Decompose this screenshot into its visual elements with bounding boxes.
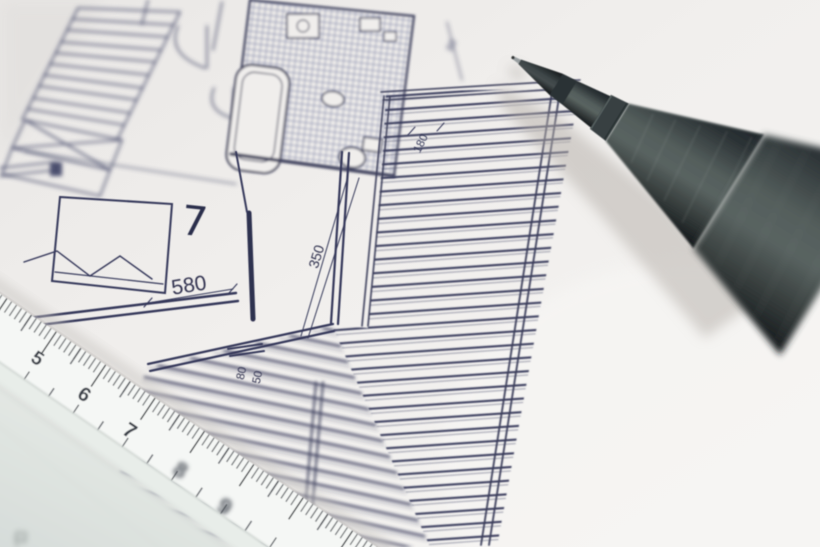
fixture-shape [384,32,396,41]
fixture-shape [360,18,380,31]
washing-machine-shape [287,14,319,38]
room-number-label: 7 [179,196,210,246]
photo-architectural-plan: 80 7 [0,0,820,547]
photo-canvas: 80 7 [0,0,820,547]
